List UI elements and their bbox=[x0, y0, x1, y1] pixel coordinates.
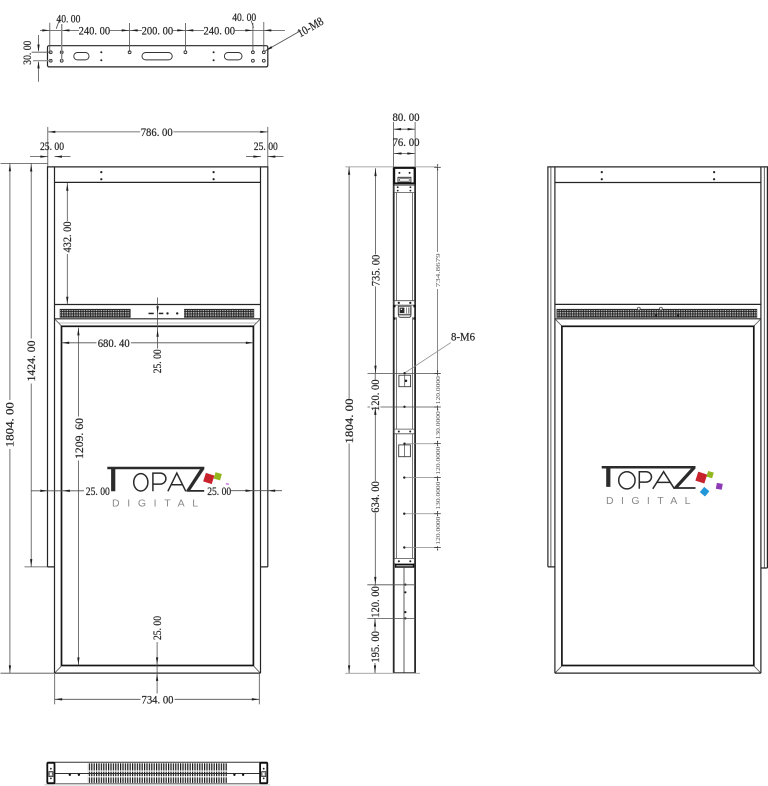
svg-text:120.0000: 120.0000 bbox=[435, 447, 442, 475]
svg-text:200. 00: 200. 00 bbox=[142, 23, 174, 37]
svg-text:130.0000: 130.0000 bbox=[435, 482, 442, 510]
svg-text:25. 00: 25. 00 bbox=[150, 349, 164, 373]
svg-text:1209. 60: 1209. 60 bbox=[72, 418, 86, 459]
svg-text:30. 00: 30. 00 bbox=[20, 41, 34, 65]
svg-text:25. 00: 25. 00 bbox=[150, 616, 164, 640]
svg-text:195. 00: 195. 00 bbox=[368, 631, 382, 663]
svg-text:680. 40: 680. 40 bbox=[98, 336, 130, 350]
svg-text:240. 00: 240. 00 bbox=[203, 23, 235, 37]
svg-text:432. 00: 432. 00 bbox=[60, 222, 74, 253]
svg-text:130.0000: 130.0000 bbox=[435, 411, 442, 439]
svg-text:120. 00: 120. 00 bbox=[368, 586, 382, 618]
svg-text:40. 00: 40. 00 bbox=[232, 10, 256, 24]
svg-text:80. 00: 80. 00 bbox=[393, 110, 420, 124]
svg-text:1804. 00: 1804. 00 bbox=[3, 402, 17, 447]
svg-text:634. 00: 634. 00 bbox=[368, 481, 382, 513]
svg-text:1804. 00: 1804. 00 bbox=[342, 399, 356, 444]
svg-text:120.0000: 120.0000 bbox=[435, 376, 442, 404]
svg-text:734.8679: 734.8679 bbox=[435, 253, 442, 287]
svg-text:1424. 00: 1424. 00 bbox=[24, 341, 38, 382]
svg-text:8-M6: 8-M6 bbox=[451, 330, 475, 344]
svg-text:25. 00: 25. 00 bbox=[254, 139, 278, 153]
svg-text:40. 00: 40. 00 bbox=[56, 12, 80, 26]
svg-text:734. 00: 734. 00 bbox=[142, 692, 174, 706]
svg-text:DIGITAL: DIGITAL bbox=[112, 497, 205, 509]
svg-text:DIGITAL: DIGITAL bbox=[606, 495, 697, 507]
svg-text:120.0000: 120.0000 bbox=[435, 517, 442, 545]
svg-text:240. 00: 240. 00 bbox=[79, 23, 111, 37]
svg-text:786. 00: 786. 00 bbox=[141, 125, 173, 139]
svg-text:25. 00: 25. 00 bbox=[40, 139, 64, 153]
svg-text:76. 00: 76. 00 bbox=[393, 135, 420, 149]
svg-text:120. 00: 120. 00 bbox=[368, 380, 382, 412]
svg-text:735. 00: 735. 00 bbox=[368, 255, 382, 287]
svg-text:25. 00: 25. 00 bbox=[207, 484, 231, 498]
svg-text:25. 00: 25. 00 bbox=[86, 484, 110, 498]
